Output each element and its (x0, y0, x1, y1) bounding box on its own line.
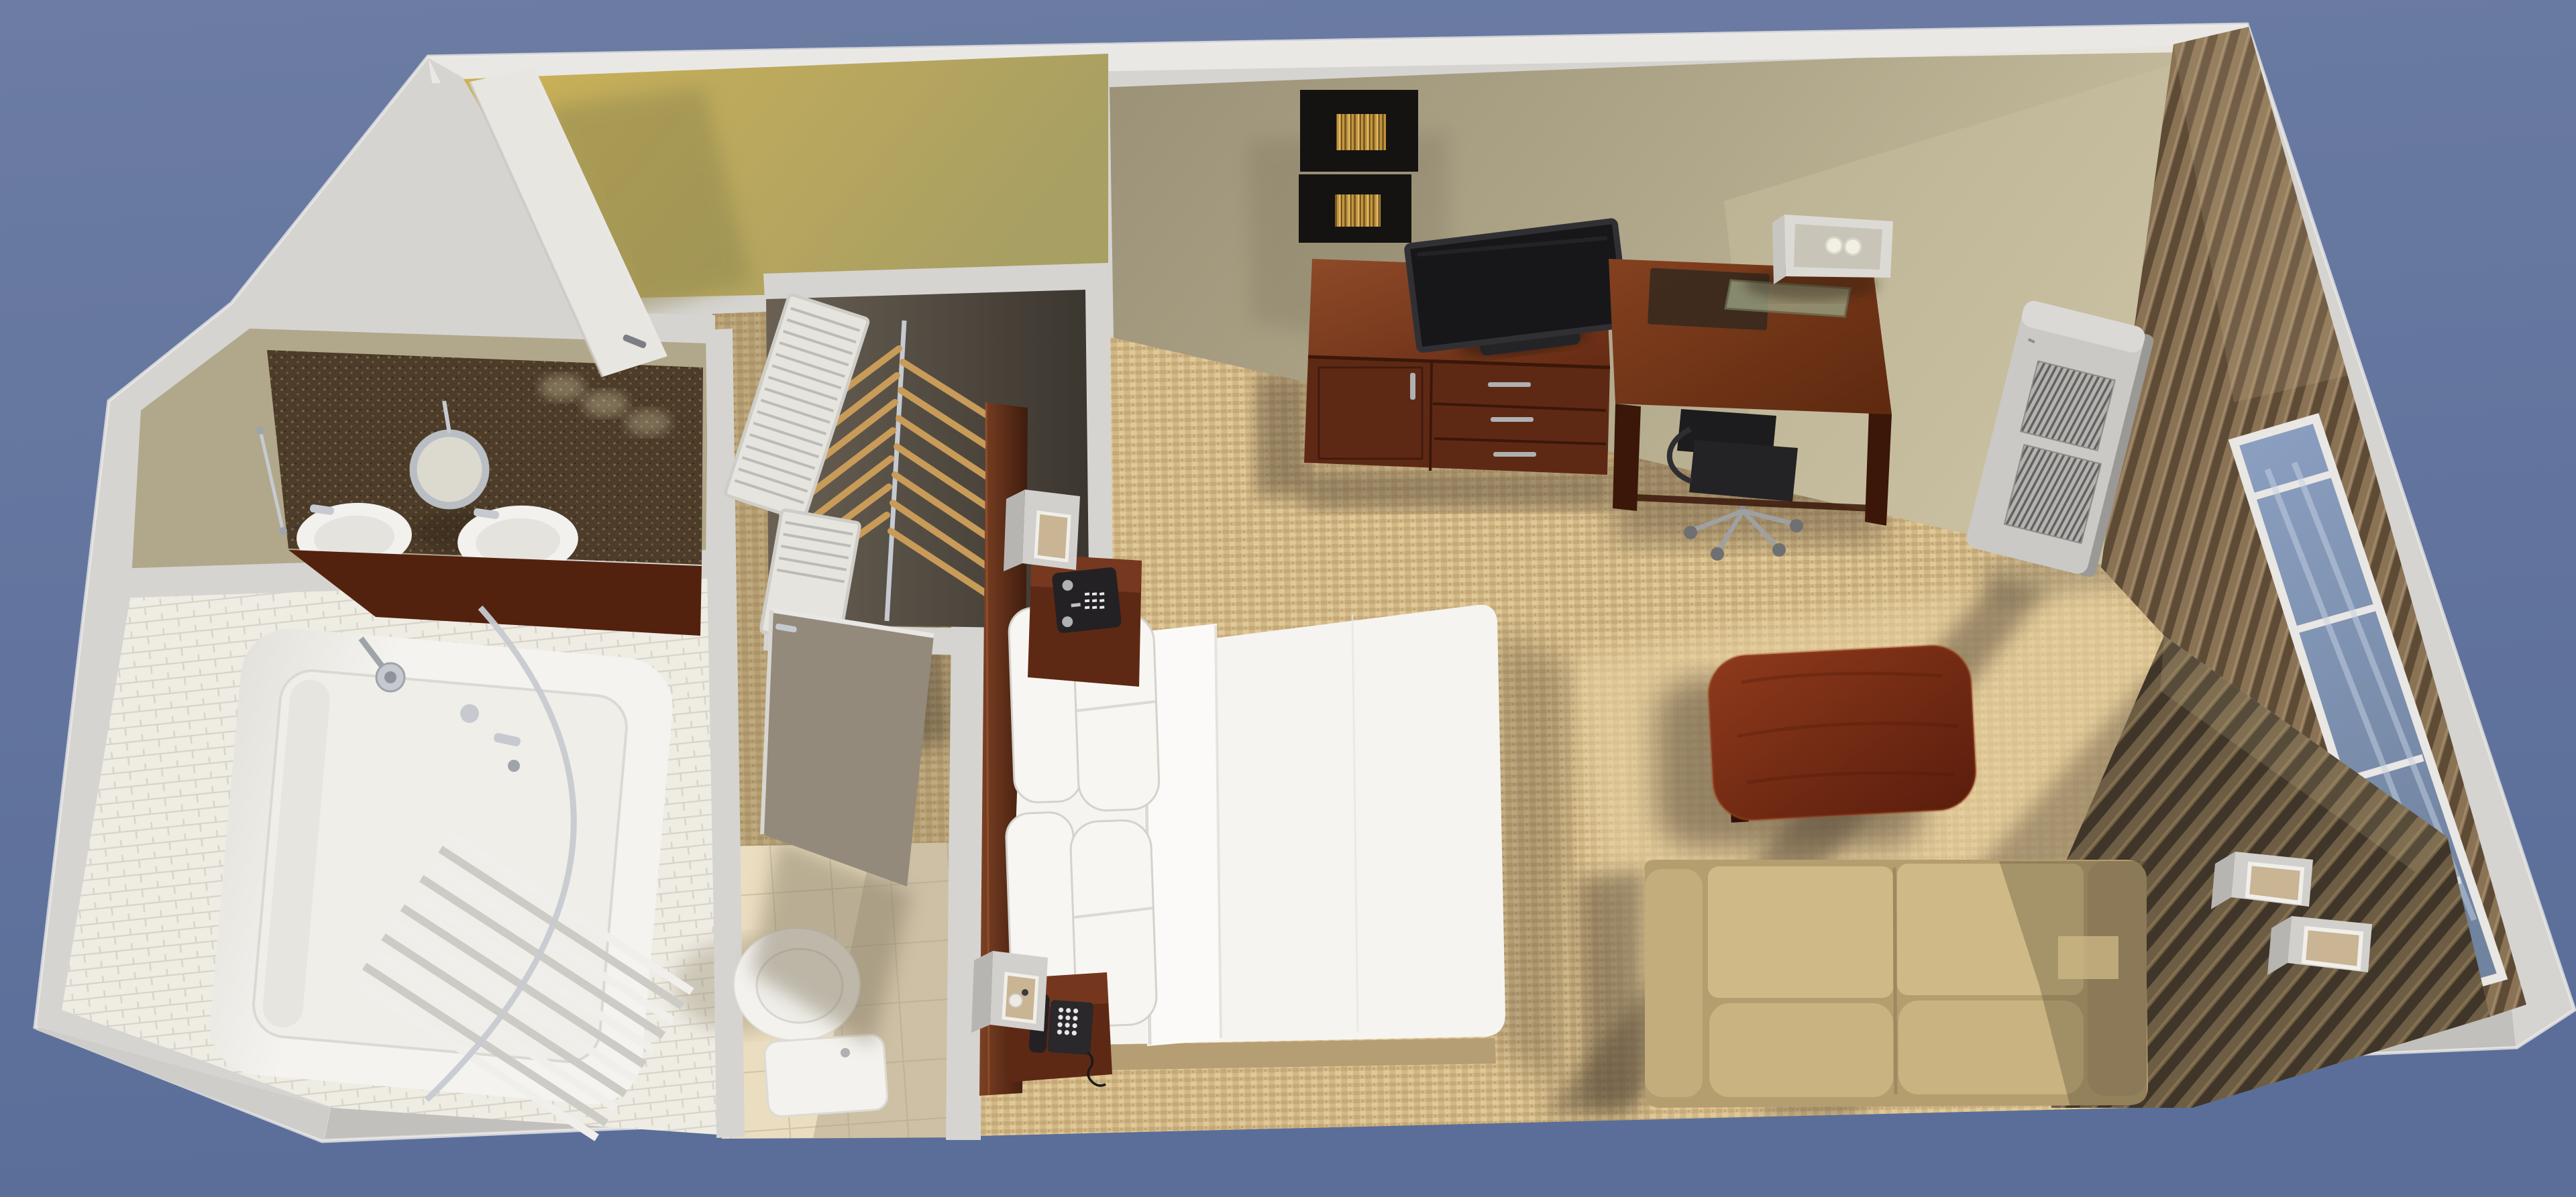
sofa-back-cushion-left (1708, 866, 1893, 998)
dresser-front (1304, 357, 1610, 475)
bedside-sconce-1 (1004, 490, 1080, 571)
dresser-shadow-front (1305, 468, 1611, 510)
towel-bar-post (279, 527, 287, 535)
sofa-shadow (1578, 869, 1645, 1108)
desk-leg-left (1613, 404, 1641, 511)
sofa-seat-cushion-left (1709, 1003, 1893, 1097)
magnifying-mirror (413, 433, 486, 506)
coffee-cup (1009, 994, 1022, 1007)
caster (1790, 519, 1803, 532)
cushion-split (1894, 868, 1896, 1094)
lamp-bulb (1826, 237, 1842, 253)
dresser-door-handle (1410, 373, 1415, 400)
caster (1772, 543, 1786, 557)
nightstand-clock-group (1028, 554, 1142, 687)
coffee-table (1707, 644, 1978, 823)
tub-overflow (508, 760, 520, 772)
loveseat-sofa (1644, 860, 2148, 1108)
dresser-divider (1430, 362, 1432, 471)
alarm-clock (1052, 567, 1122, 634)
tub-faucet-handle (460, 704, 479, 723)
caster (1711, 547, 1724, 561)
downlight-pool (582, 390, 628, 417)
towel-bar-post (256, 426, 264, 435)
room-rendering-stage (0, 0, 2576, 1197)
cube-opening (2304, 928, 2361, 968)
drawer-handle (1493, 452, 1536, 457)
shadow-gap-highlight (2058, 936, 2118, 979)
cube-opening (2247, 864, 2302, 903)
art-print-lower (1335, 194, 1381, 227)
sconce-opening (1036, 512, 1069, 561)
lamp-shade-side (1772, 215, 1786, 284)
art-print-upper (1336, 114, 1386, 150)
bed-side-shadow (1496, 630, 1570, 1093)
drawer-handle (1491, 417, 1534, 422)
table-top (1707, 644, 1978, 822)
lamp-bulb (1845, 239, 1861, 255)
bedside-sconce-2 (971, 951, 1048, 1033)
shower-room (206, 608, 694, 1141)
clock-buttons (1083, 591, 1106, 610)
sconce-side (1004, 490, 1025, 571)
drawer-handle (1488, 382, 1531, 387)
toilet-tank-group (764, 1034, 888, 1117)
sconce-side (971, 951, 993, 1033)
caster (1684, 526, 1697, 539)
chair-seat (1689, 440, 1798, 502)
wall-art-pair (1299, 90, 1418, 243)
phone-body (1047, 1000, 1093, 1055)
dresser-shadow-side (1256, 373, 1309, 497)
toilet-tank (764, 1034, 888, 1117)
sofa-arm-left (1645, 869, 1703, 1097)
downlight-pool (539, 374, 585, 401)
showerhead-center (384, 671, 396, 683)
downlight-pool (625, 409, 671, 436)
hotel-room-cutaway-rendering (0, 0, 2576, 1197)
kettle-knob (1022, 989, 1028, 996)
